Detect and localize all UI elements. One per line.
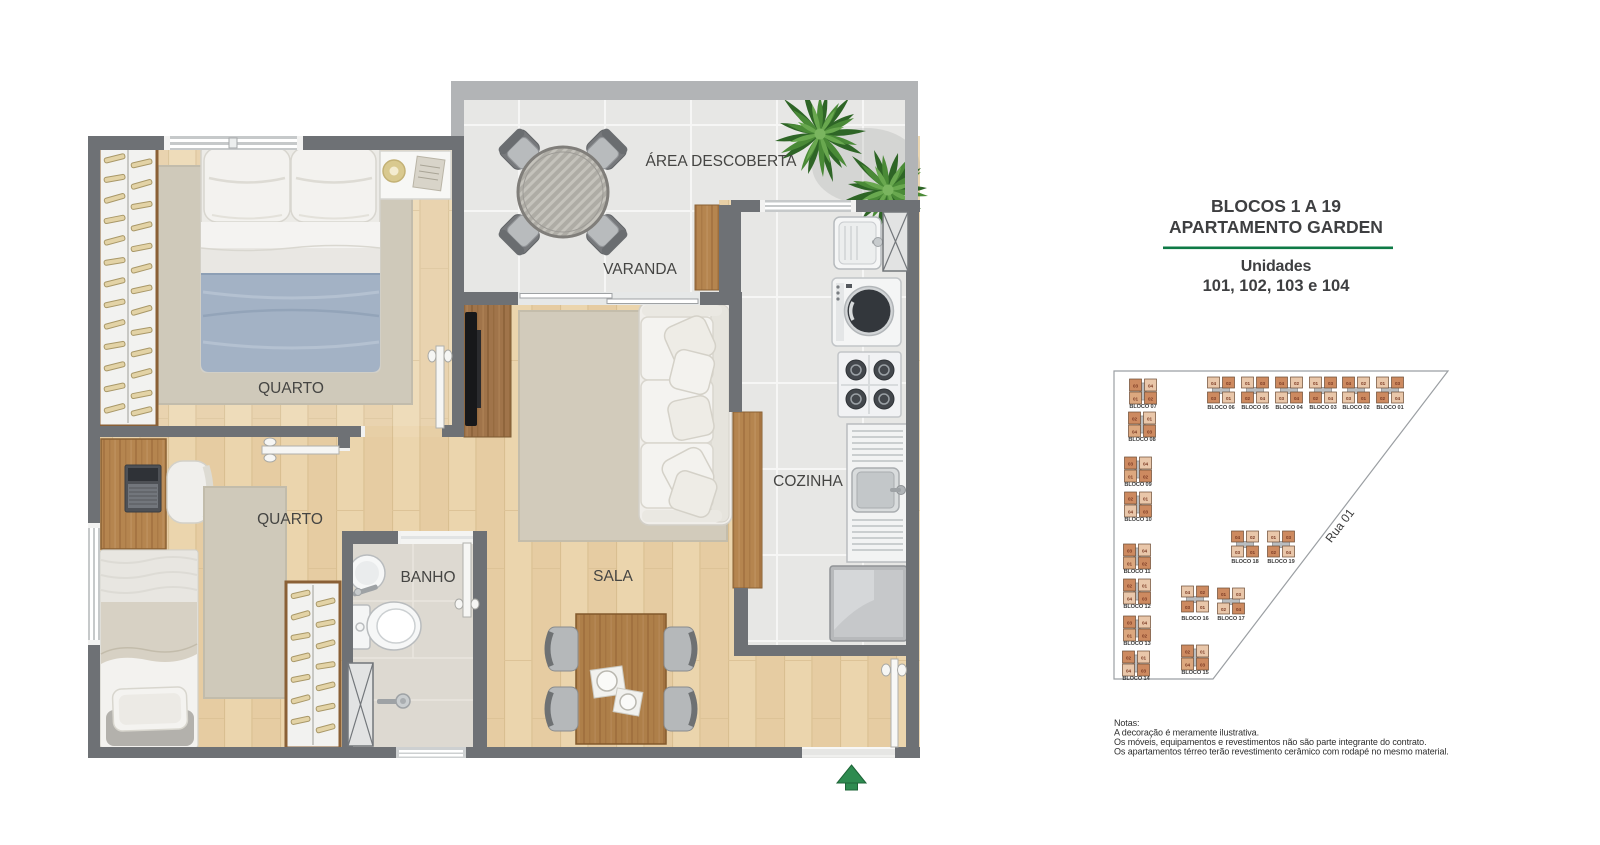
svg-text:04: 04 — [1148, 384, 1154, 389]
svg-text:01: 01 — [1127, 562, 1133, 567]
svg-text:BLOCO 01: BLOCO 01 — [1376, 405, 1403, 411]
svg-text:02: 02 — [1221, 607, 1227, 612]
svg-text:01: 01 — [1141, 656, 1147, 661]
svg-text:BLOCO 07: BLOCO 07 — [1129, 404, 1156, 410]
svg-text:BLOCO 11: BLOCO 11 — [1124, 569, 1151, 575]
svg-text:01: 01 — [1271, 535, 1277, 540]
svg-text:BLOCO 14: BLOCO 14 — [1122, 676, 1150, 682]
svg-text:04: 04 — [1346, 381, 1352, 386]
svg-text:02: 02 — [1148, 397, 1154, 402]
svg-text:01: 01 — [1142, 584, 1148, 589]
svg-text:02: 02 — [1250, 535, 1256, 540]
svg-text:ÁREA DESCOBERTA: ÁREA DESCOBERTA — [645, 153, 797, 170]
svg-text:COZINHA: COZINHA — [773, 473, 843, 490]
svg-text:04: 04 — [1142, 549, 1148, 554]
svg-text:03: 03 — [1143, 510, 1149, 515]
svg-text:03: 03 — [1211, 396, 1217, 401]
svg-text:01: 01 — [1133, 397, 1139, 402]
svg-text:02: 02 — [1142, 562, 1148, 567]
svg-text:Os apartamentos térreo terão r: Os apartamentos térreo terão revestiment… — [1114, 747, 1449, 757]
svg-text:03: 03 — [1127, 621, 1133, 626]
svg-text:02: 02 — [1127, 584, 1133, 589]
svg-text:03: 03 — [1260, 381, 1266, 386]
svg-text:BLOCO 13: BLOCO 13 — [1123, 641, 1150, 647]
svg-text:BLOCOS 1 A 19: BLOCOS 1 A 19 — [1211, 196, 1341, 216]
svg-text:04: 04 — [1235, 535, 1241, 540]
svg-text:01: 01 — [1143, 497, 1149, 502]
svg-text:BLOCO 05: BLOCO 05 — [1241, 405, 1268, 411]
svg-text:BLOCO 12: BLOCO 12 — [1123, 604, 1150, 610]
svg-text:03: 03 — [1328, 381, 1334, 386]
svg-text:BLOCO 03: BLOCO 03 — [1309, 405, 1336, 411]
svg-text:BLOCO 02: BLOCO 02 — [1342, 405, 1369, 411]
svg-text:04: 04 — [1279, 381, 1285, 386]
svg-text:BLOCO 06: BLOCO 06 — [1207, 405, 1234, 411]
svg-text:03: 03 — [1141, 669, 1147, 674]
svg-text:02: 02 — [1294, 381, 1300, 386]
svg-text:04: 04 — [1143, 462, 1149, 467]
svg-text:BLOCO 19: BLOCO 19 — [1267, 559, 1294, 565]
svg-text:02: 02 — [1226, 381, 1232, 386]
svg-text:01: 01 — [1200, 605, 1206, 610]
svg-text:01: 01 — [1127, 634, 1133, 639]
svg-text:03: 03 — [1236, 592, 1242, 597]
svg-text:02: 02 — [1126, 656, 1132, 661]
svg-text:01: 01 — [1250, 550, 1256, 555]
svg-text:03: 03 — [1235, 550, 1241, 555]
svg-text:Notas:: Notas: — [1114, 718, 1139, 728]
svg-text:BLOCO 04: BLOCO 04 — [1275, 405, 1303, 411]
svg-text:03: 03 — [1286, 535, 1292, 540]
svg-text:01: 01 — [1380, 381, 1386, 386]
svg-text:BLOCO 09: BLOCO 09 — [1124, 482, 1151, 488]
svg-text:BLOCO 17: BLOCO 17 — [1217, 616, 1244, 622]
svg-text:04: 04 — [1211, 381, 1217, 386]
svg-text:BLOCO 18: BLOCO 18 — [1231, 559, 1258, 565]
svg-text:04: 04 — [1185, 590, 1191, 595]
svg-text:04: 04 — [1126, 669, 1132, 674]
svg-text:BLOCO 10: BLOCO 10 — [1124, 517, 1151, 523]
svg-text:APARTAMENTO GARDEN: APARTAMENTO GARDEN — [1169, 217, 1383, 237]
svg-text:02: 02 — [1185, 650, 1191, 655]
svg-text:02: 02 — [1245, 396, 1251, 401]
svg-text:02: 02 — [1200, 590, 1206, 595]
svg-text:04: 04 — [1128, 510, 1134, 515]
svg-text:03: 03 — [1346, 396, 1352, 401]
svg-text:04: 04 — [1294, 396, 1300, 401]
svg-text:02: 02 — [1271, 550, 1277, 555]
svg-text:BLOCO 15: BLOCO 15 — [1181, 670, 1208, 676]
svg-text:02: 02 — [1361, 381, 1367, 386]
svg-text:01: 01 — [1226, 396, 1232, 401]
svg-text:01: 01 — [1361, 396, 1367, 401]
svg-text:02: 02 — [1128, 497, 1134, 502]
svg-text:04: 04 — [1395, 396, 1401, 401]
svg-text:04: 04 — [1260, 396, 1266, 401]
svg-text:03: 03 — [1147, 430, 1153, 435]
svg-text:04: 04 — [1286, 550, 1292, 555]
svg-text:SALA: SALA — [593, 568, 633, 585]
svg-text:03: 03 — [1279, 396, 1285, 401]
svg-text:03: 03 — [1185, 605, 1191, 610]
svg-text:04: 04 — [1185, 663, 1191, 668]
svg-text:QUARTO: QUARTO — [258, 380, 324, 397]
svg-text:A decoração é meramente ilustr: A decoração é meramente ilustrativa. — [1114, 728, 1259, 738]
svg-text:02: 02 — [1142, 634, 1148, 639]
svg-text:02: 02 — [1143, 475, 1149, 480]
svg-text:03: 03 — [1142, 597, 1148, 602]
svg-text:03: 03 — [1128, 462, 1134, 467]
svg-text:01: 01 — [1313, 381, 1319, 386]
svg-text:VARANDA: VARANDA — [603, 261, 677, 278]
svg-text:01: 01 — [1245, 381, 1251, 386]
svg-text:101, 102, 103 e 104: 101, 102, 103 e 104 — [1203, 277, 1351, 295]
svg-text:03: 03 — [1133, 384, 1139, 389]
svg-text:04: 04 — [1127, 597, 1133, 602]
svg-text:Unidades: Unidades — [1241, 258, 1312, 275]
svg-text:02: 02 — [1132, 417, 1138, 422]
svg-text:04: 04 — [1236, 607, 1242, 612]
svg-text:04: 04 — [1142, 621, 1148, 626]
svg-text:BLOCO 08: BLOCO 08 — [1128, 437, 1155, 443]
svg-text:02: 02 — [1313, 396, 1319, 401]
svg-text:01: 01 — [1221, 592, 1227, 597]
svg-text:BANHO: BANHO — [400, 569, 455, 586]
svg-text:03: 03 — [1200, 663, 1206, 668]
svg-text:04: 04 — [1132, 430, 1138, 435]
svg-text:03: 03 — [1395, 381, 1401, 386]
svg-text:04: 04 — [1328, 396, 1334, 401]
svg-text:QUARTO: QUARTO — [257, 511, 323, 528]
svg-text:03: 03 — [1127, 549, 1133, 554]
svg-text:01: 01 — [1128, 475, 1134, 480]
svg-text:02: 02 — [1380, 396, 1386, 401]
svg-text:01: 01 — [1200, 650, 1206, 655]
svg-text:Os móveis, equipamentos e reve: Os móveis, equipamentos e revestimentos … — [1114, 737, 1426, 747]
svg-text:01: 01 — [1147, 417, 1153, 422]
svg-text:BLOCO 16: BLOCO 16 — [1181, 616, 1208, 622]
